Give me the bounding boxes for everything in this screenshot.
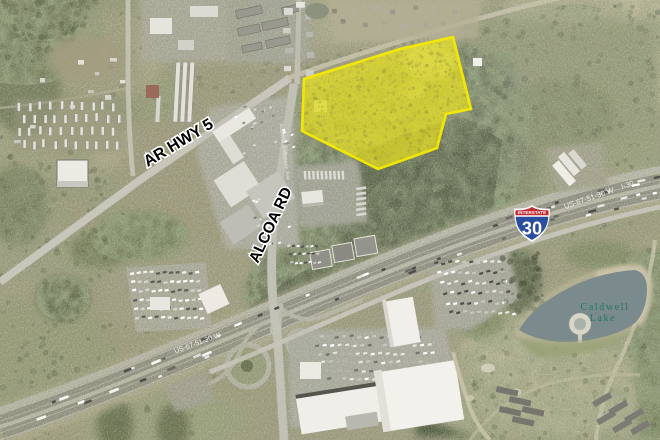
svg-text:INTERSTATE: INTERSTATE bbox=[518, 210, 546, 215]
svg-text:Caldwell: Caldwell bbox=[581, 302, 630, 313]
svg-text:30: 30 bbox=[522, 218, 542, 238]
svg-text:Lake: Lake bbox=[590, 313, 616, 324]
